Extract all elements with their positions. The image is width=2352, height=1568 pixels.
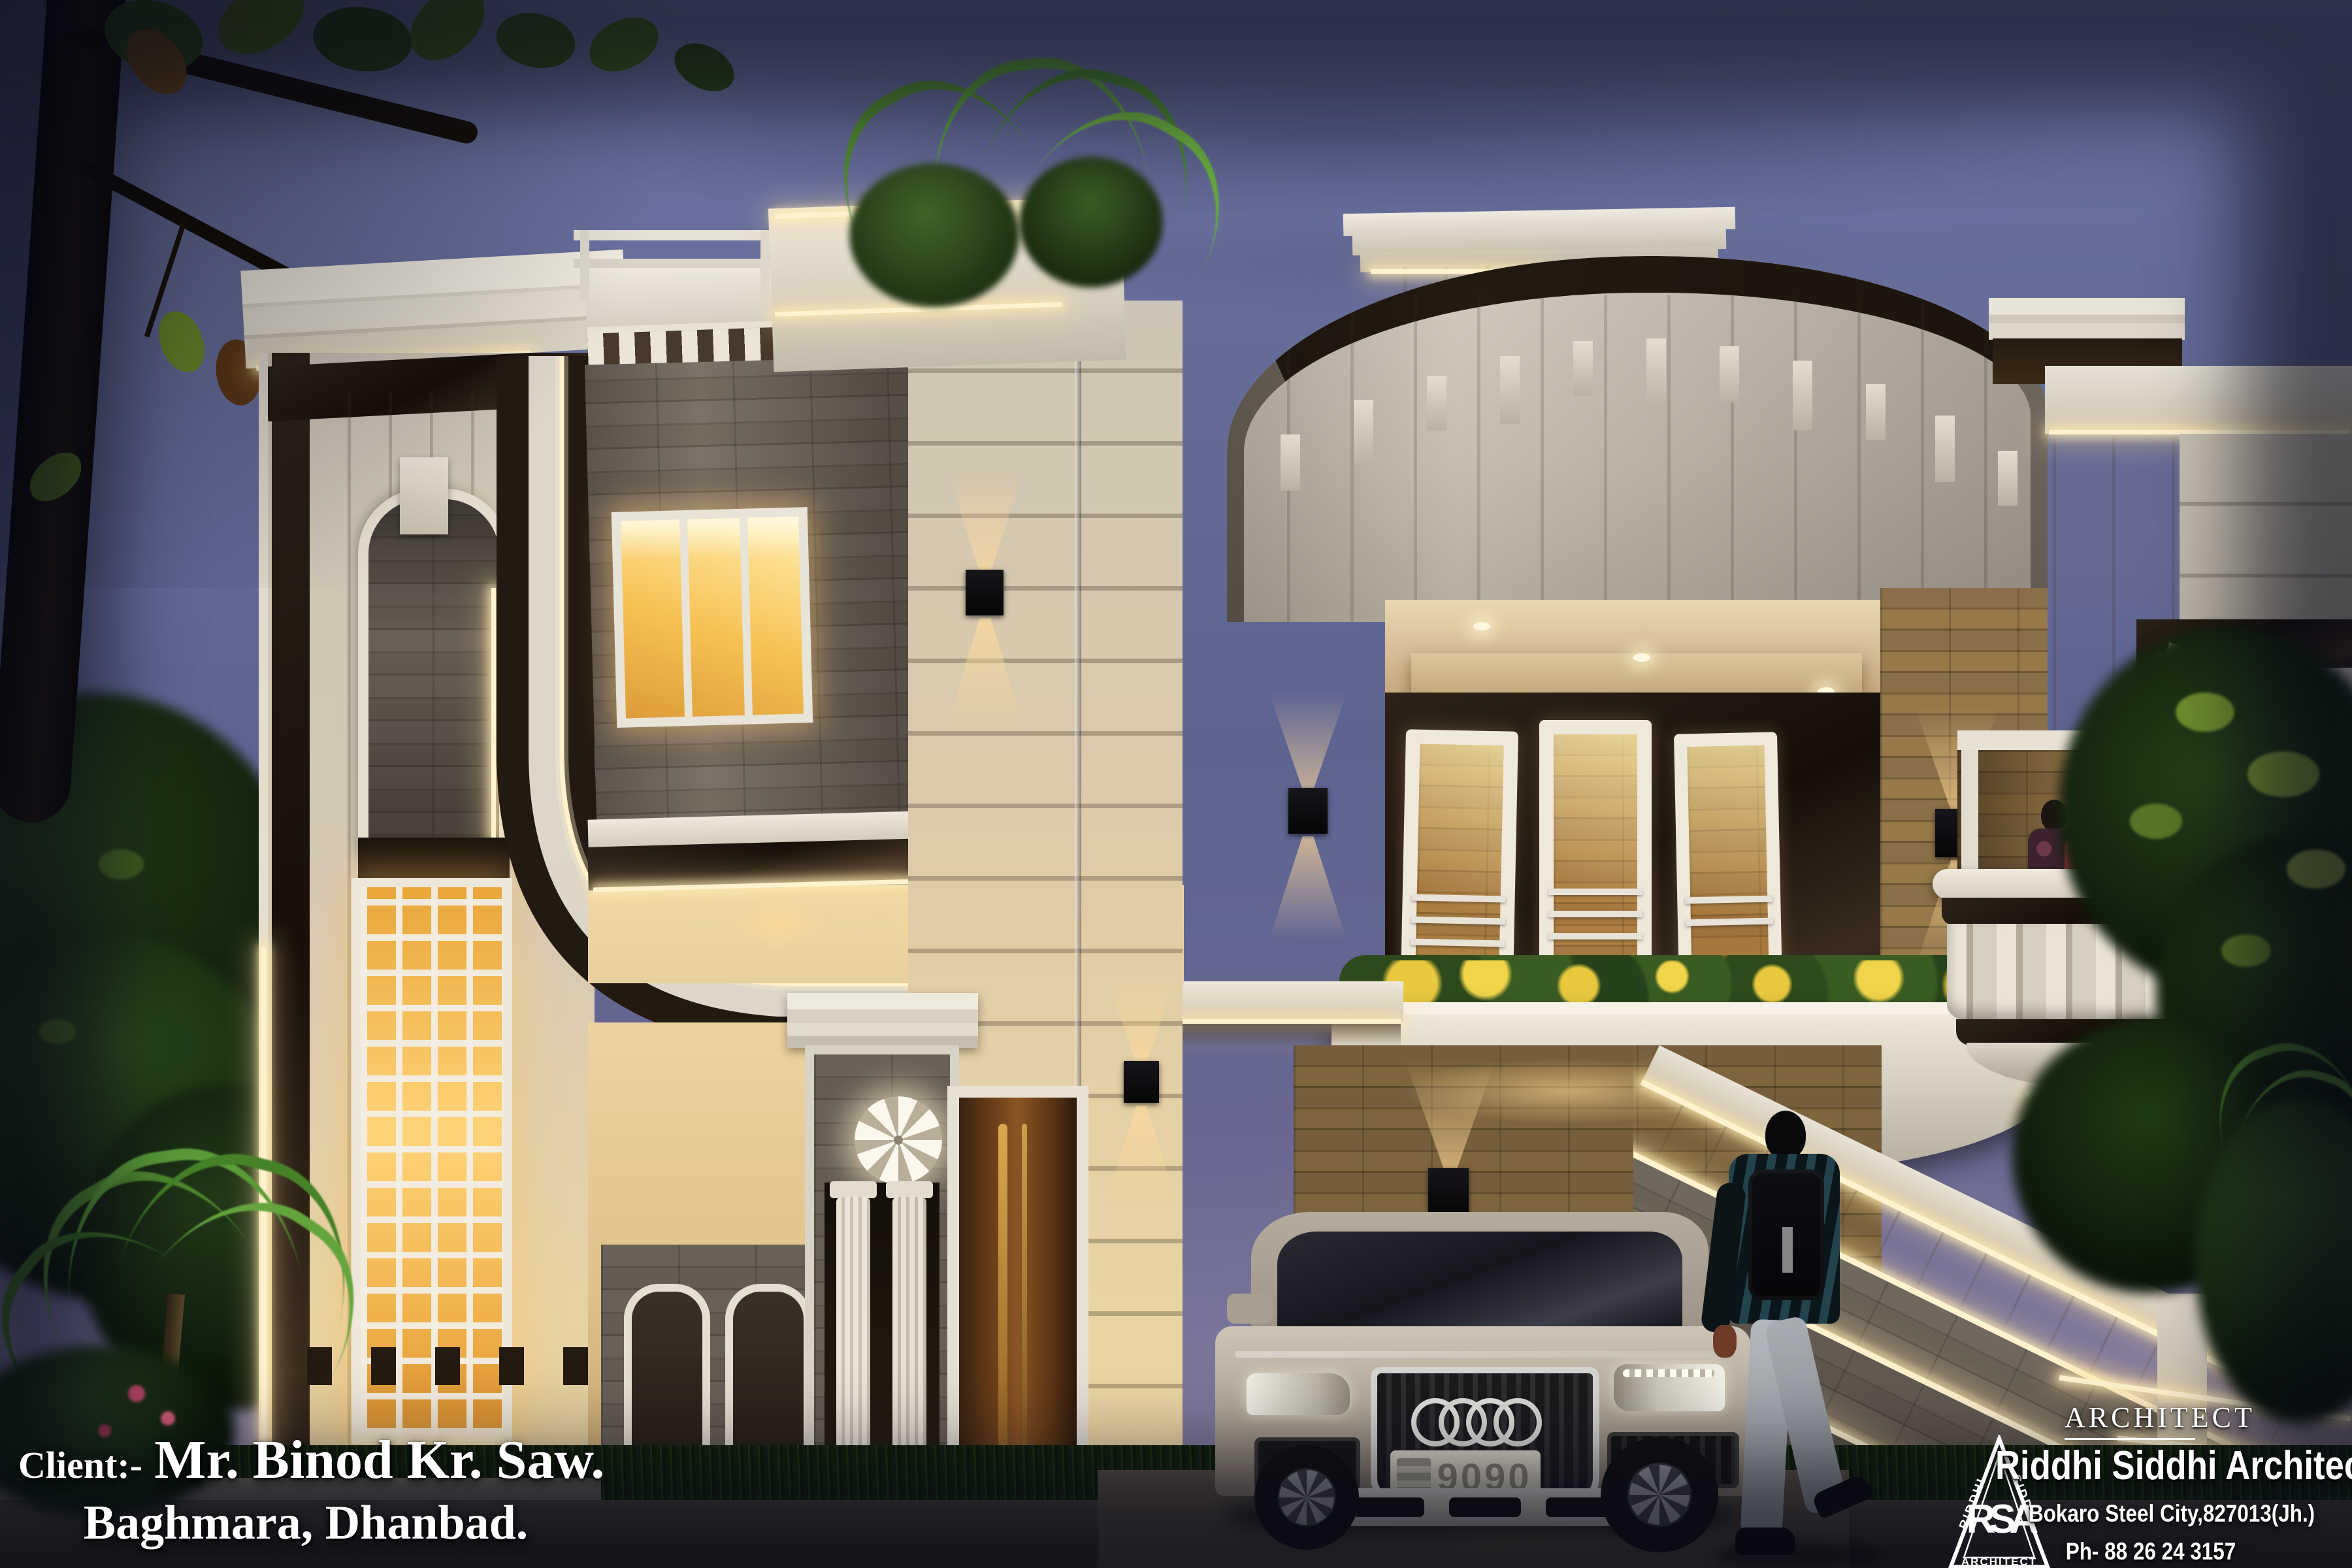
client-caption: Client:- Mr. Binod Kr. Saw. Baghmara, Dh…	[18, 1428, 737, 1551]
logo-bottom-word: ARCHITECT	[1961, 1556, 2037, 1568]
brand-phone: Ph- 88 26 24 3157	[2029, 1538, 2273, 1565]
vignette-top-left	[0, 0, 784, 588]
client-label: Client:-	[18, 1444, 142, 1486]
client-name: Mr. Binod Kr. Saw.	[154, 1429, 604, 1490]
brand-name: Riddhi Siddhi Architect	[1995, 1443, 2306, 1489]
client-line-1: Client:- Mr. Binod Kr. Saw.	[18, 1428, 737, 1492]
brand-header: ARCHITECT	[2065, 1401, 2195, 1440]
client-location: Baghmara, Dhanbad.	[18, 1495, 593, 1551]
architectural-render-scene: 9090	[0, 0, 2352, 1568]
brand-address: Bokaro Steel City,827013(Jh.)	[2029, 1500, 2273, 1527]
brand-block: RSA RIDDHI SIDDHI ARCHITECT ARCHITECT Ri…	[1934, 1392, 2352, 1568]
